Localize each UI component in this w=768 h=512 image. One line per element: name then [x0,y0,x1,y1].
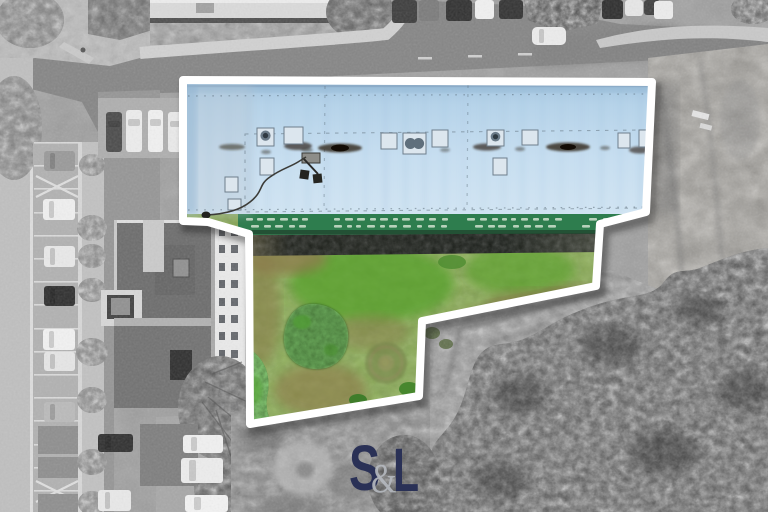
svg-text:L: L [393,437,419,505]
svg-text:&: & [371,457,397,502]
